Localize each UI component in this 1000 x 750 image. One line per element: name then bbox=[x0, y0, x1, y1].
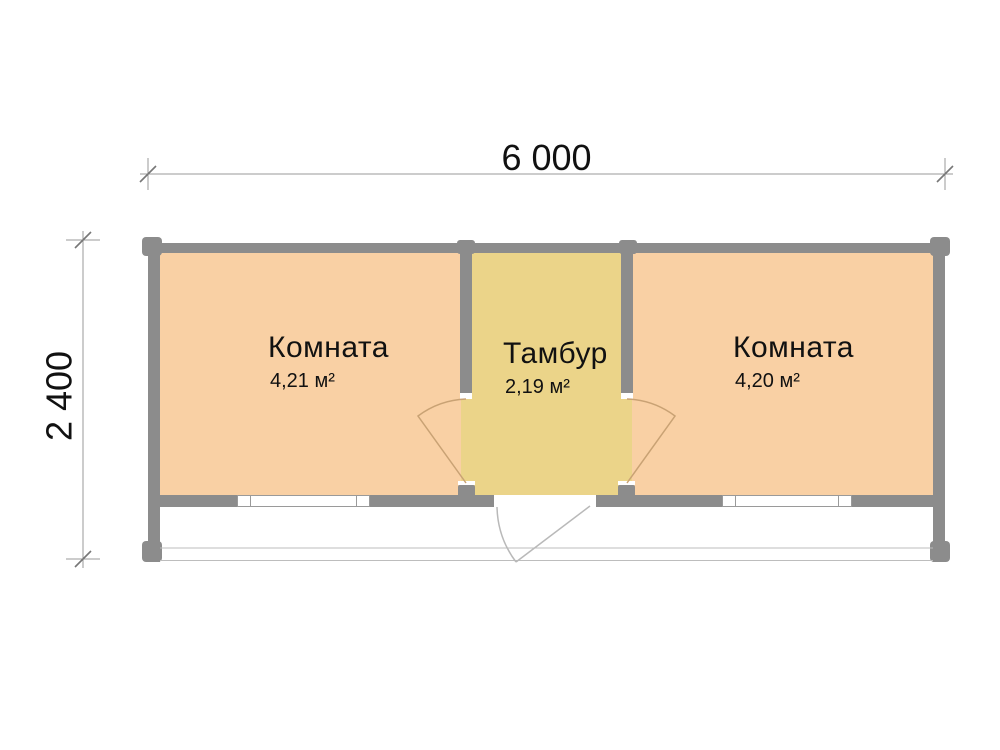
room-area: 4,21 м² bbox=[268, 371, 389, 391]
floor-plan: 6 000 2 400 bbox=[0, 0, 1000, 750]
room-name: Тамбур bbox=[503, 339, 608, 369]
tambour-label: Тамбур 2,19 м² bbox=[503, 339, 608, 397]
room-area: 2,19 м² bbox=[503, 377, 608, 397]
door-swing-right-room bbox=[627, 399, 675, 483]
room-name: Комната bbox=[268, 333, 389, 363]
door-swing-entrance bbox=[497, 506, 590, 562]
room-name: Комната bbox=[733, 333, 854, 363]
room-area: 4,20 м² bbox=[733, 371, 854, 391]
door-swing-left-room bbox=[418, 399, 466, 483]
room-left-label: Комната 4,21 м² bbox=[268, 333, 389, 391]
porch-edge-lines bbox=[160, 548, 933, 561]
room-right-label: Комната 4,20 м² bbox=[733, 333, 854, 391]
